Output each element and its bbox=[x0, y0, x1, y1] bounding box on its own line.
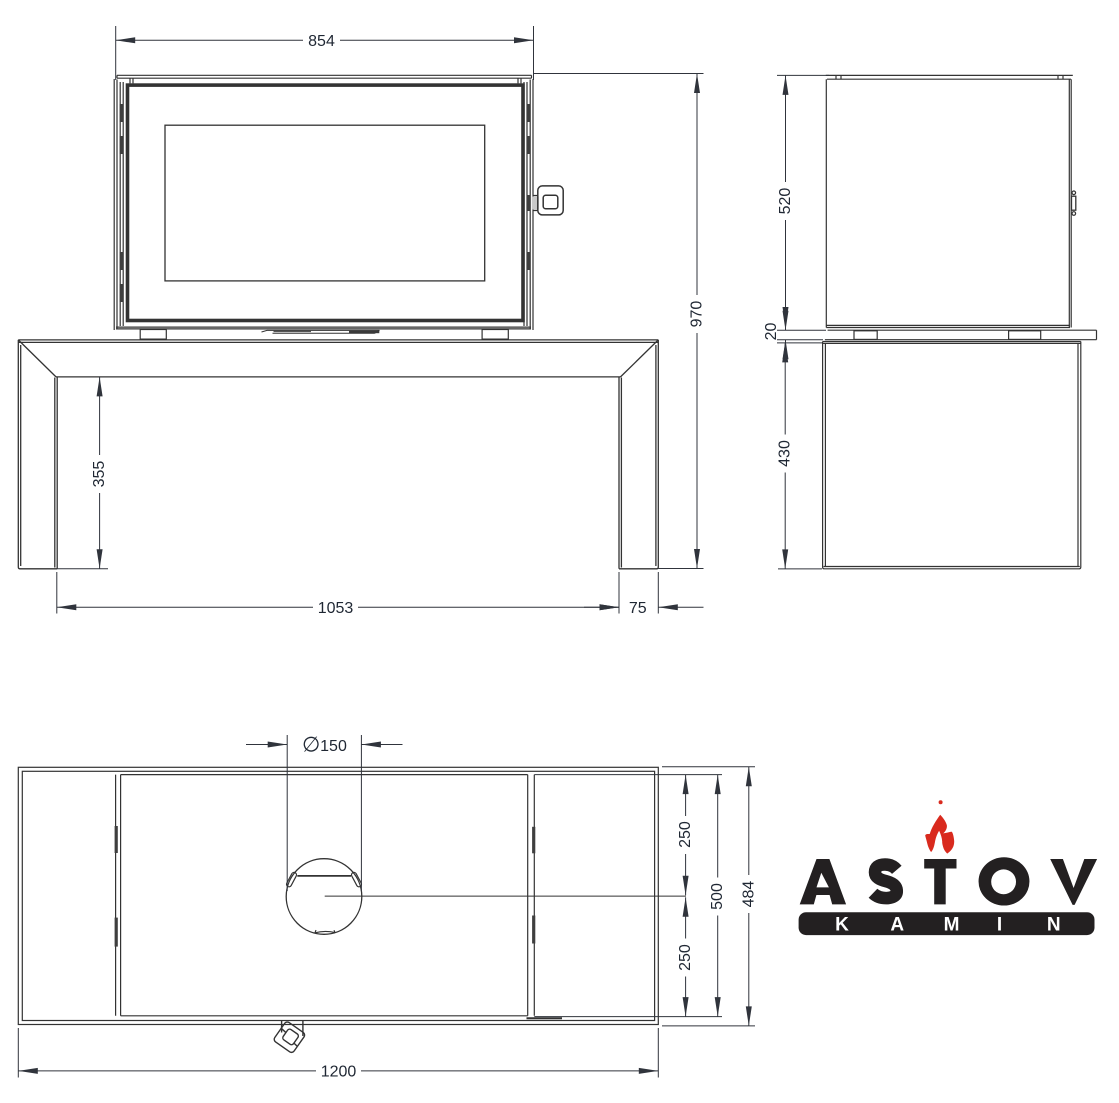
svg-text:1053: 1053 bbox=[318, 600, 354, 617]
svg-text:854: 854 bbox=[308, 33, 335, 50]
svg-text:355: 355 bbox=[91, 461, 108, 488]
svg-text:520: 520 bbox=[777, 188, 794, 215]
svg-text:M: M bbox=[944, 914, 960, 935]
svg-text:484: 484 bbox=[740, 881, 757, 908]
svg-text:500: 500 bbox=[709, 883, 726, 910]
svg-text:20: 20 bbox=[763, 323, 780, 341]
svg-text:I: I bbox=[997, 914, 1002, 935]
svg-text:250: 250 bbox=[677, 944, 694, 971]
svg-text:1200: 1200 bbox=[321, 1064, 357, 1081]
svg-text:150: 150 bbox=[320, 738, 347, 755]
svg-text:A: A bbox=[890, 914, 904, 935]
svg-text:N: N bbox=[1047, 914, 1061, 935]
svg-text:970: 970 bbox=[689, 301, 706, 328]
svg-text:∅: ∅ bbox=[302, 734, 320, 757]
svg-text:250: 250 bbox=[677, 821, 694, 848]
svg-text:75: 75 bbox=[629, 600, 647, 617]
svg-text:K: K bbox=[835, 914, 849, 935]
svg-text:430: 430 bbox=[777, 440, 794, 467]
